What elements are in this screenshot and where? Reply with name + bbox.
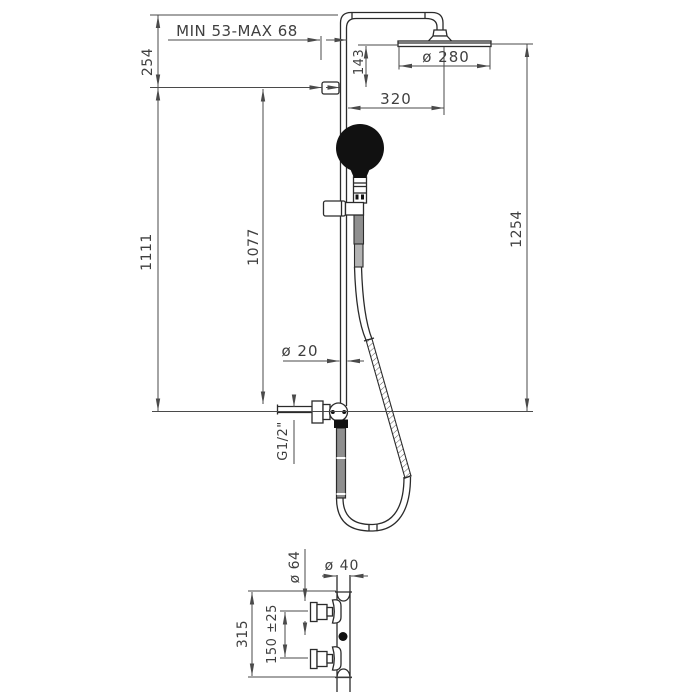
upper-valve-handle: [311, 603, 318, 622]
upper-valve-cap: [317, 605, 327, 620]
label-detail-height: 315: [235, 620, 251, 648]
label-adjustment: MIN 53-MAX 68: [176, 22, 298, 40]
label-head-drop: 143: [352, 49, 367, 75]
hose-upper-right: [362, 267, 373, 339]
hose-drop-section: [337, 428, 346, 498]
label-rail-height: 1111: [139, 233, 155, 271]
label-head-diameter: ø 280: [422, 48, 470, 66]
label-body-diameter: ø 40: [325, 558, 360, 574]
lower-valve-body: [333, 647, 342, 670]
dimension-layer: [150, 15, 533, 677]
upper-valve-stem: [327, 608, 333, 617]
upper-valve-body: [333, 600, 342, 623]
label-top-offset: 254: [140, 48, 156, 76]
label-thread: G1/2": [276, 421, 291, 460]
handle-mark: [361, 195, 364, 200]
hose-flex-section: [366, 339, 411, 478]
hose-loop-inner: [343, 477, 404, 525]
lower-valve-stem: [327, 655, 333, 664]
drawing-canvas: MIN 53-MAX 68 ø 280 320 ø 20 ø 40 254 11…: [0, 0, 700, 700]
mixer-nut-arc: [337, 592, 350, 601]
shower-head: [398, 41, 491, 47]
handshower-handle: [354, 177, 367, 203]
handle-mark: [356, 195, 359, 200]
mixer-detail-outline: [311, 575, 353, 692]
label-inlet-spacing: 150 ±25: [265, 604, 280, 664]
hose-grip-lower: [355, 244, 364, 267]
label-rail-diameter: ø 20: [281, 342, 318, 360]
head-connector-nut: [433, 30, 447, 36]
label-arm-reach: 320: [380, 90, 412, 108]
label-total-height: 1254: [509, 210, 525, 248]
label-layer: MIN 53-MAX 68 ø 280 320 ø 20 ø 40 254 11…: [139, 22, 525, 664]
label-hose-height: 1077: [246, 228, 262, 266]
lower-valve-handle: [311, 650, 318, 669]
lower-valve-cap: [317, 652, 327, 667]
shower-technical-drawing: MIN 53-MAX 68 ø 280 320 ø 20 ø 40 254 11…: [0, 0, 700, 700]
label-escutcheon-diameter: ø 64: [287, 551, 303, 584]
handshower-neck: [349, 166, 371, 178]
mixer-screw: [339, 632, 348, 641]
slider-bracket-left: [324, 201, 346, 216]
slider-bracket-right: [346, 203, 364, 216]
hose-nut: [334, 420, 348, 429]
hose-grip-upper: [354, 215, 364, 244]
handshower-head: [336, 124, 384, 172]
